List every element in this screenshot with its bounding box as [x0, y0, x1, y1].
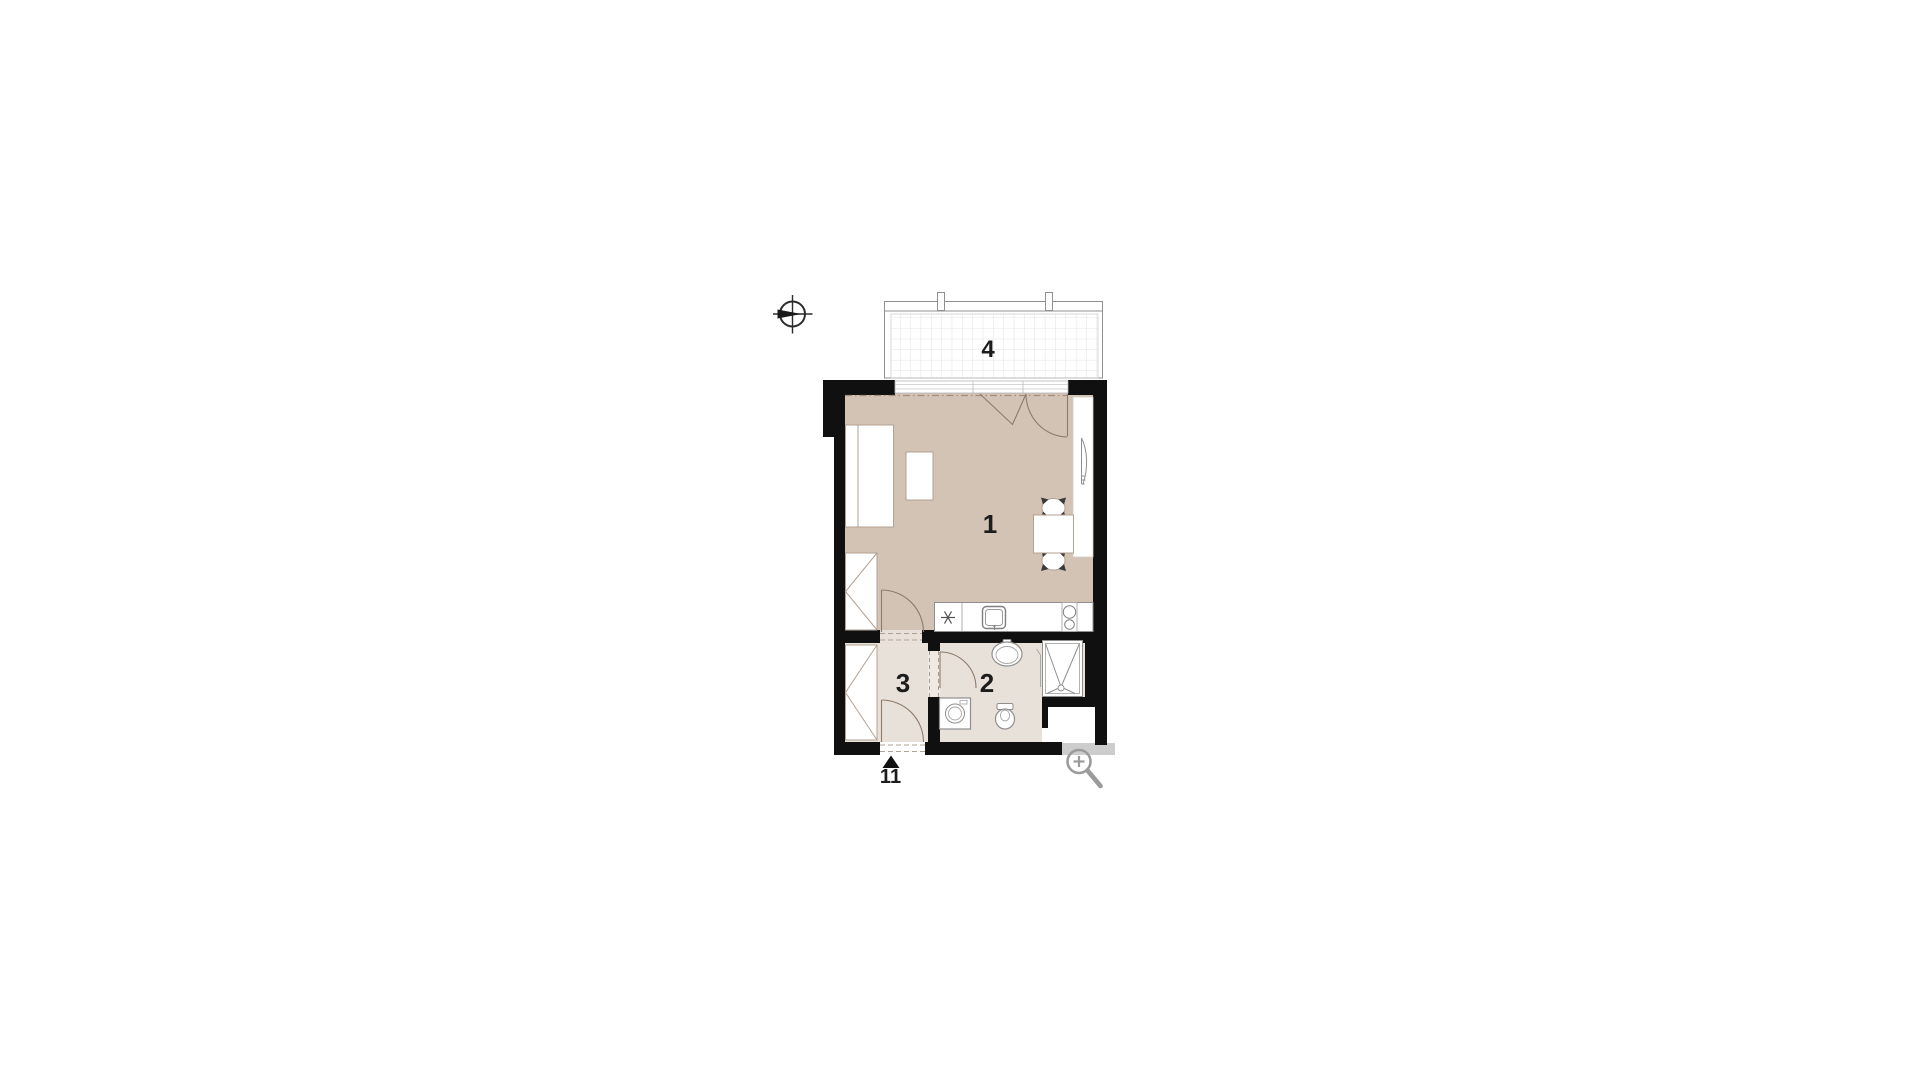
wardrobe — [846, 553, 878, 630]
balcony-post — [938, 293, 945, 311]
toilet — [996, 704, 1015, 730]
room-label-4: 4 — [981, 336, 995, 363]
shower — [1043, 641, 1083, 697]
hall-wardrobe — [846, 645, 878, 740]
dining-table — [1034, 515, 1074, 553]
room-label-1: 1 — [983, 509, 997, 539]
balcony-door-sill — [895, 381, 1068, 393]
bed — [846, 425, 894, 527]
washing-machine — [940, 698, 971, 729]
room-label-3: 3 — [896, 668, 910, 698]
sink — [983, 607, 1006, 631]
page: 1 2 3 4 11 — [0, 0, 1920, 1080]
stove — [1062, 603, 1077, 632]
room-label-2: 2 — [980, 668, 994, 698]
balcony-post — [1046, 293, 1053, 311]
wall-counter — [1073, 397, 1093, 557]
floor-plan: 1 2 3 4 11 — [0, 0, 1920, 1080]
side-table — [906, 452, 933, 500]
kitchen — [935, 603, 1094, 632]
magnifier-icon[interactable] — [1068, 750, 1101, 786]
compass-icon — [773, 295, 813, 334]
entrance-unit-label: 11 — [880, 766, 901, 788]
